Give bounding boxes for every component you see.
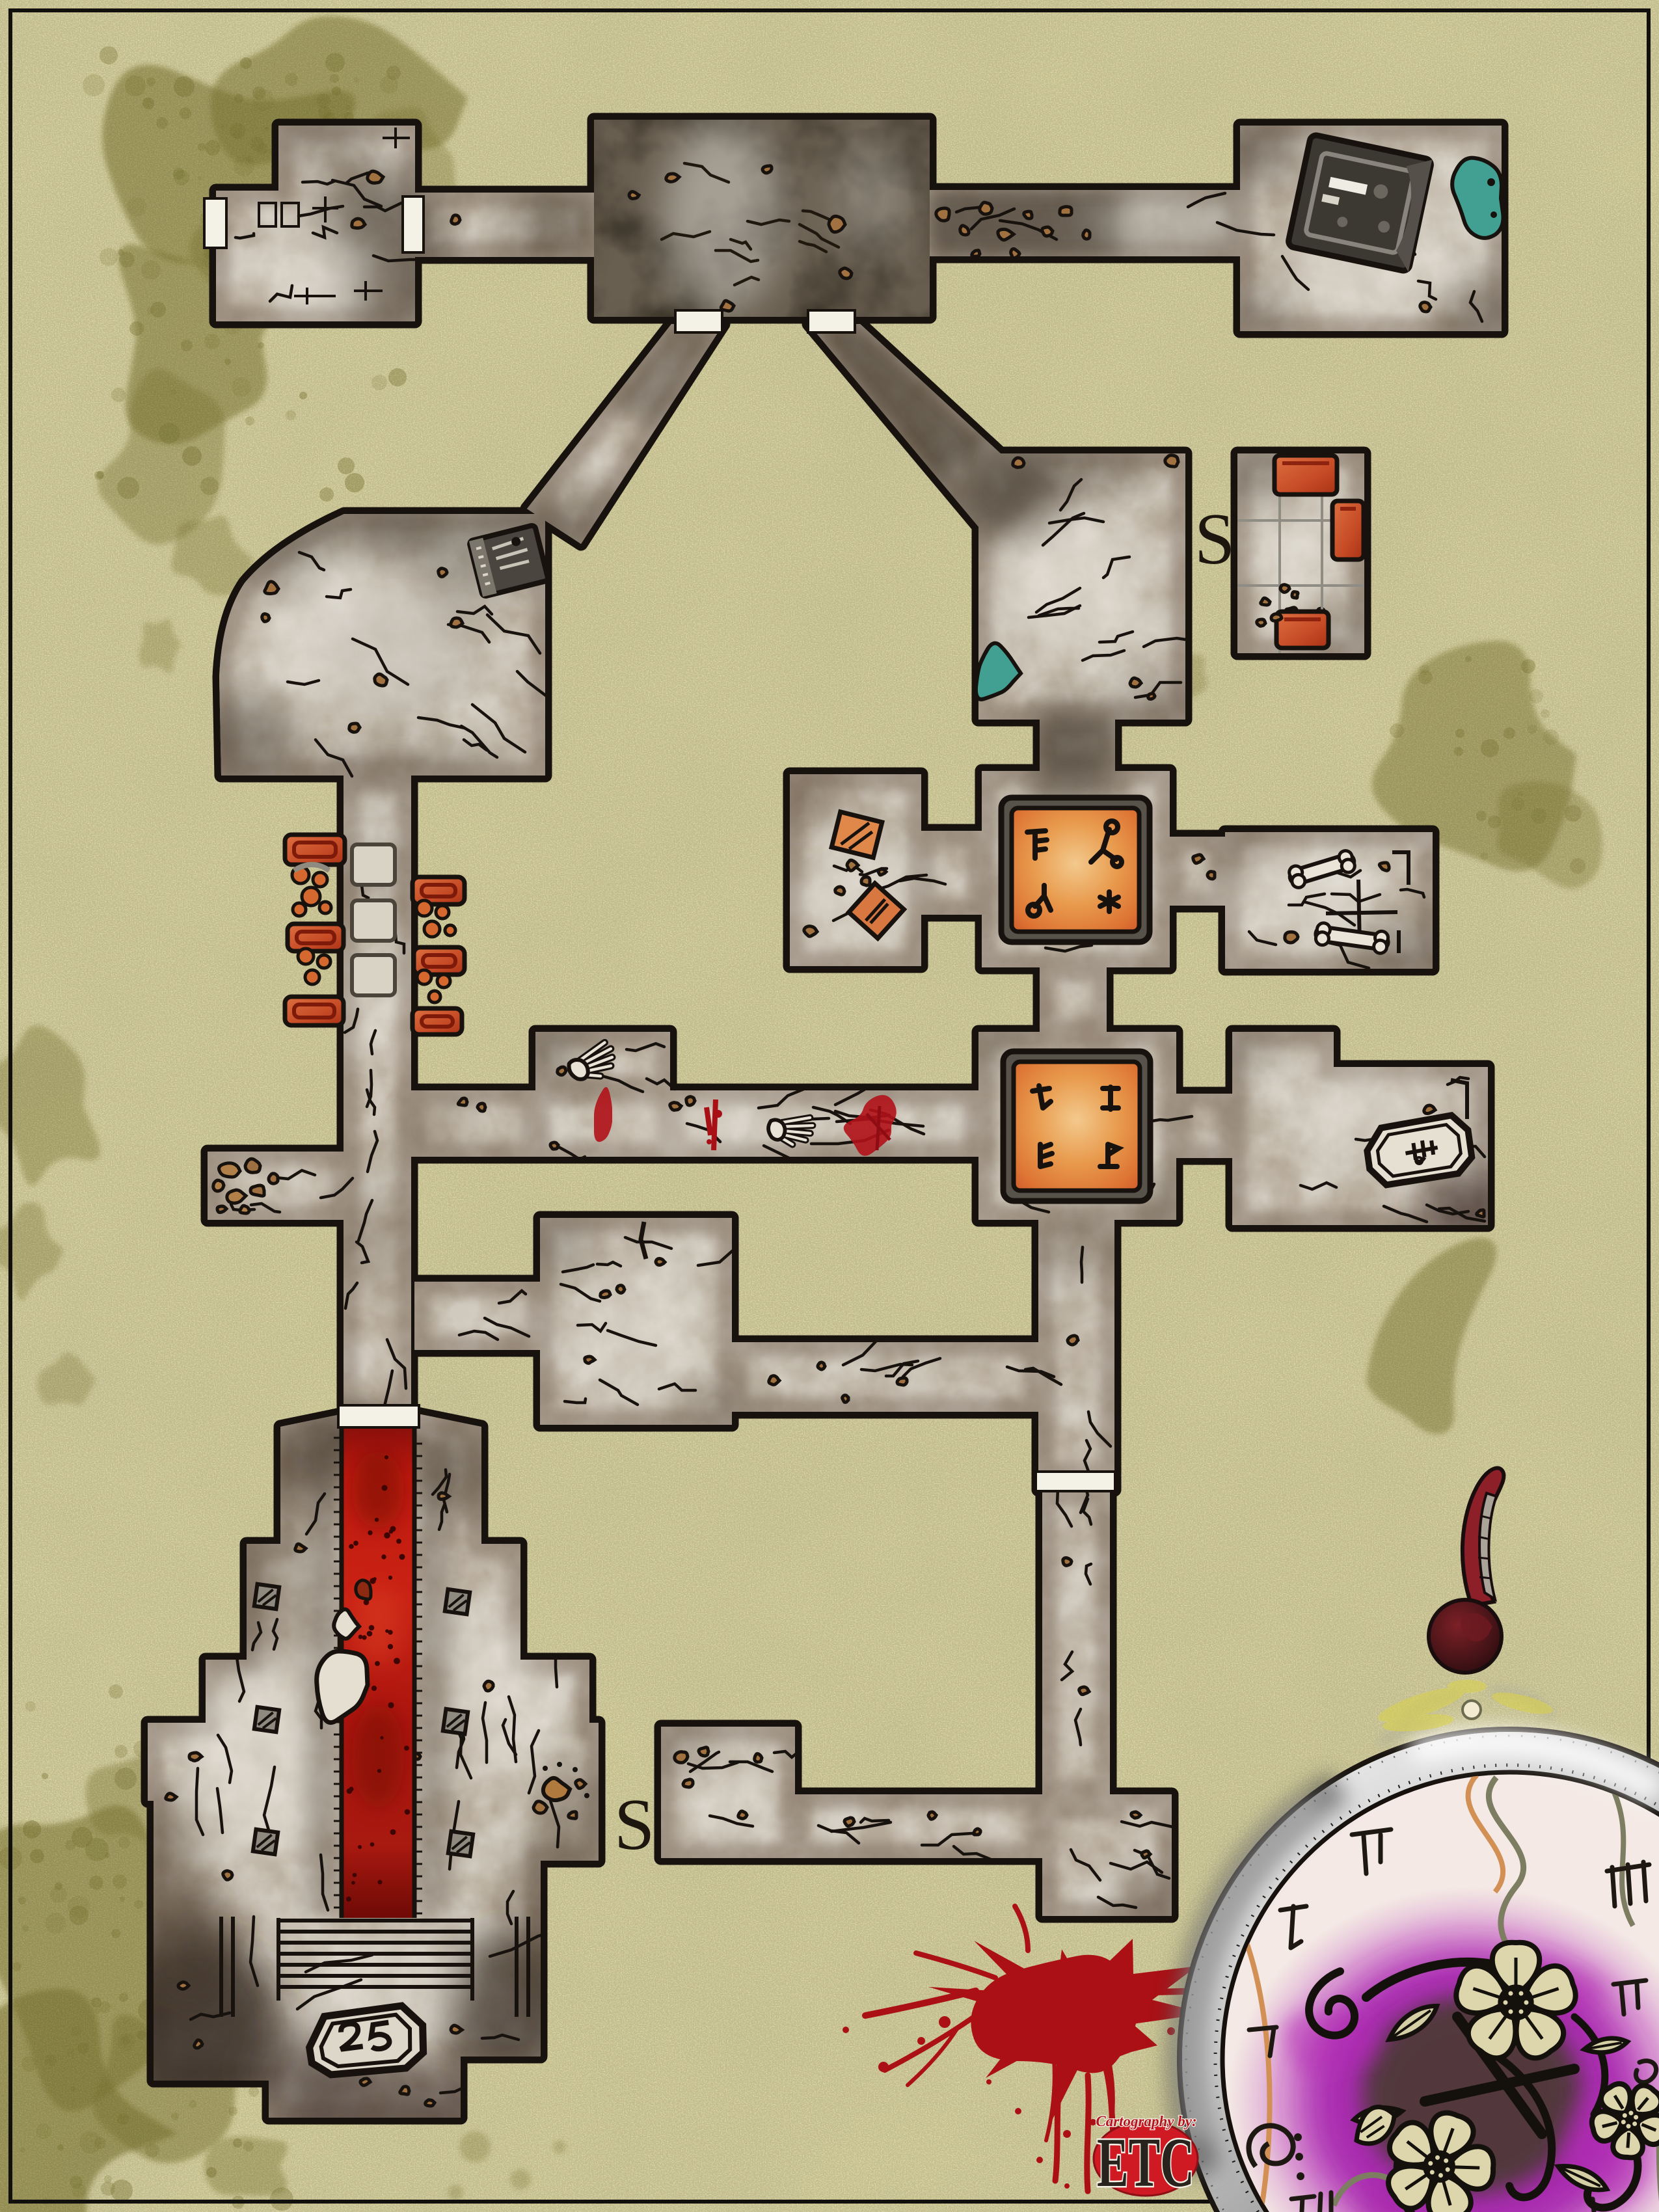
svg-text:S: S — [1194, 499, 1235, 580]
svg-text:ETC: ETC — [1097, 2124, 1194, 2202]
svg-text:Cartography by:: Cartography by: — [1096, 2113, 1196, 2129]
svg-text:S: S — [614, 1785, 654, 1865]
